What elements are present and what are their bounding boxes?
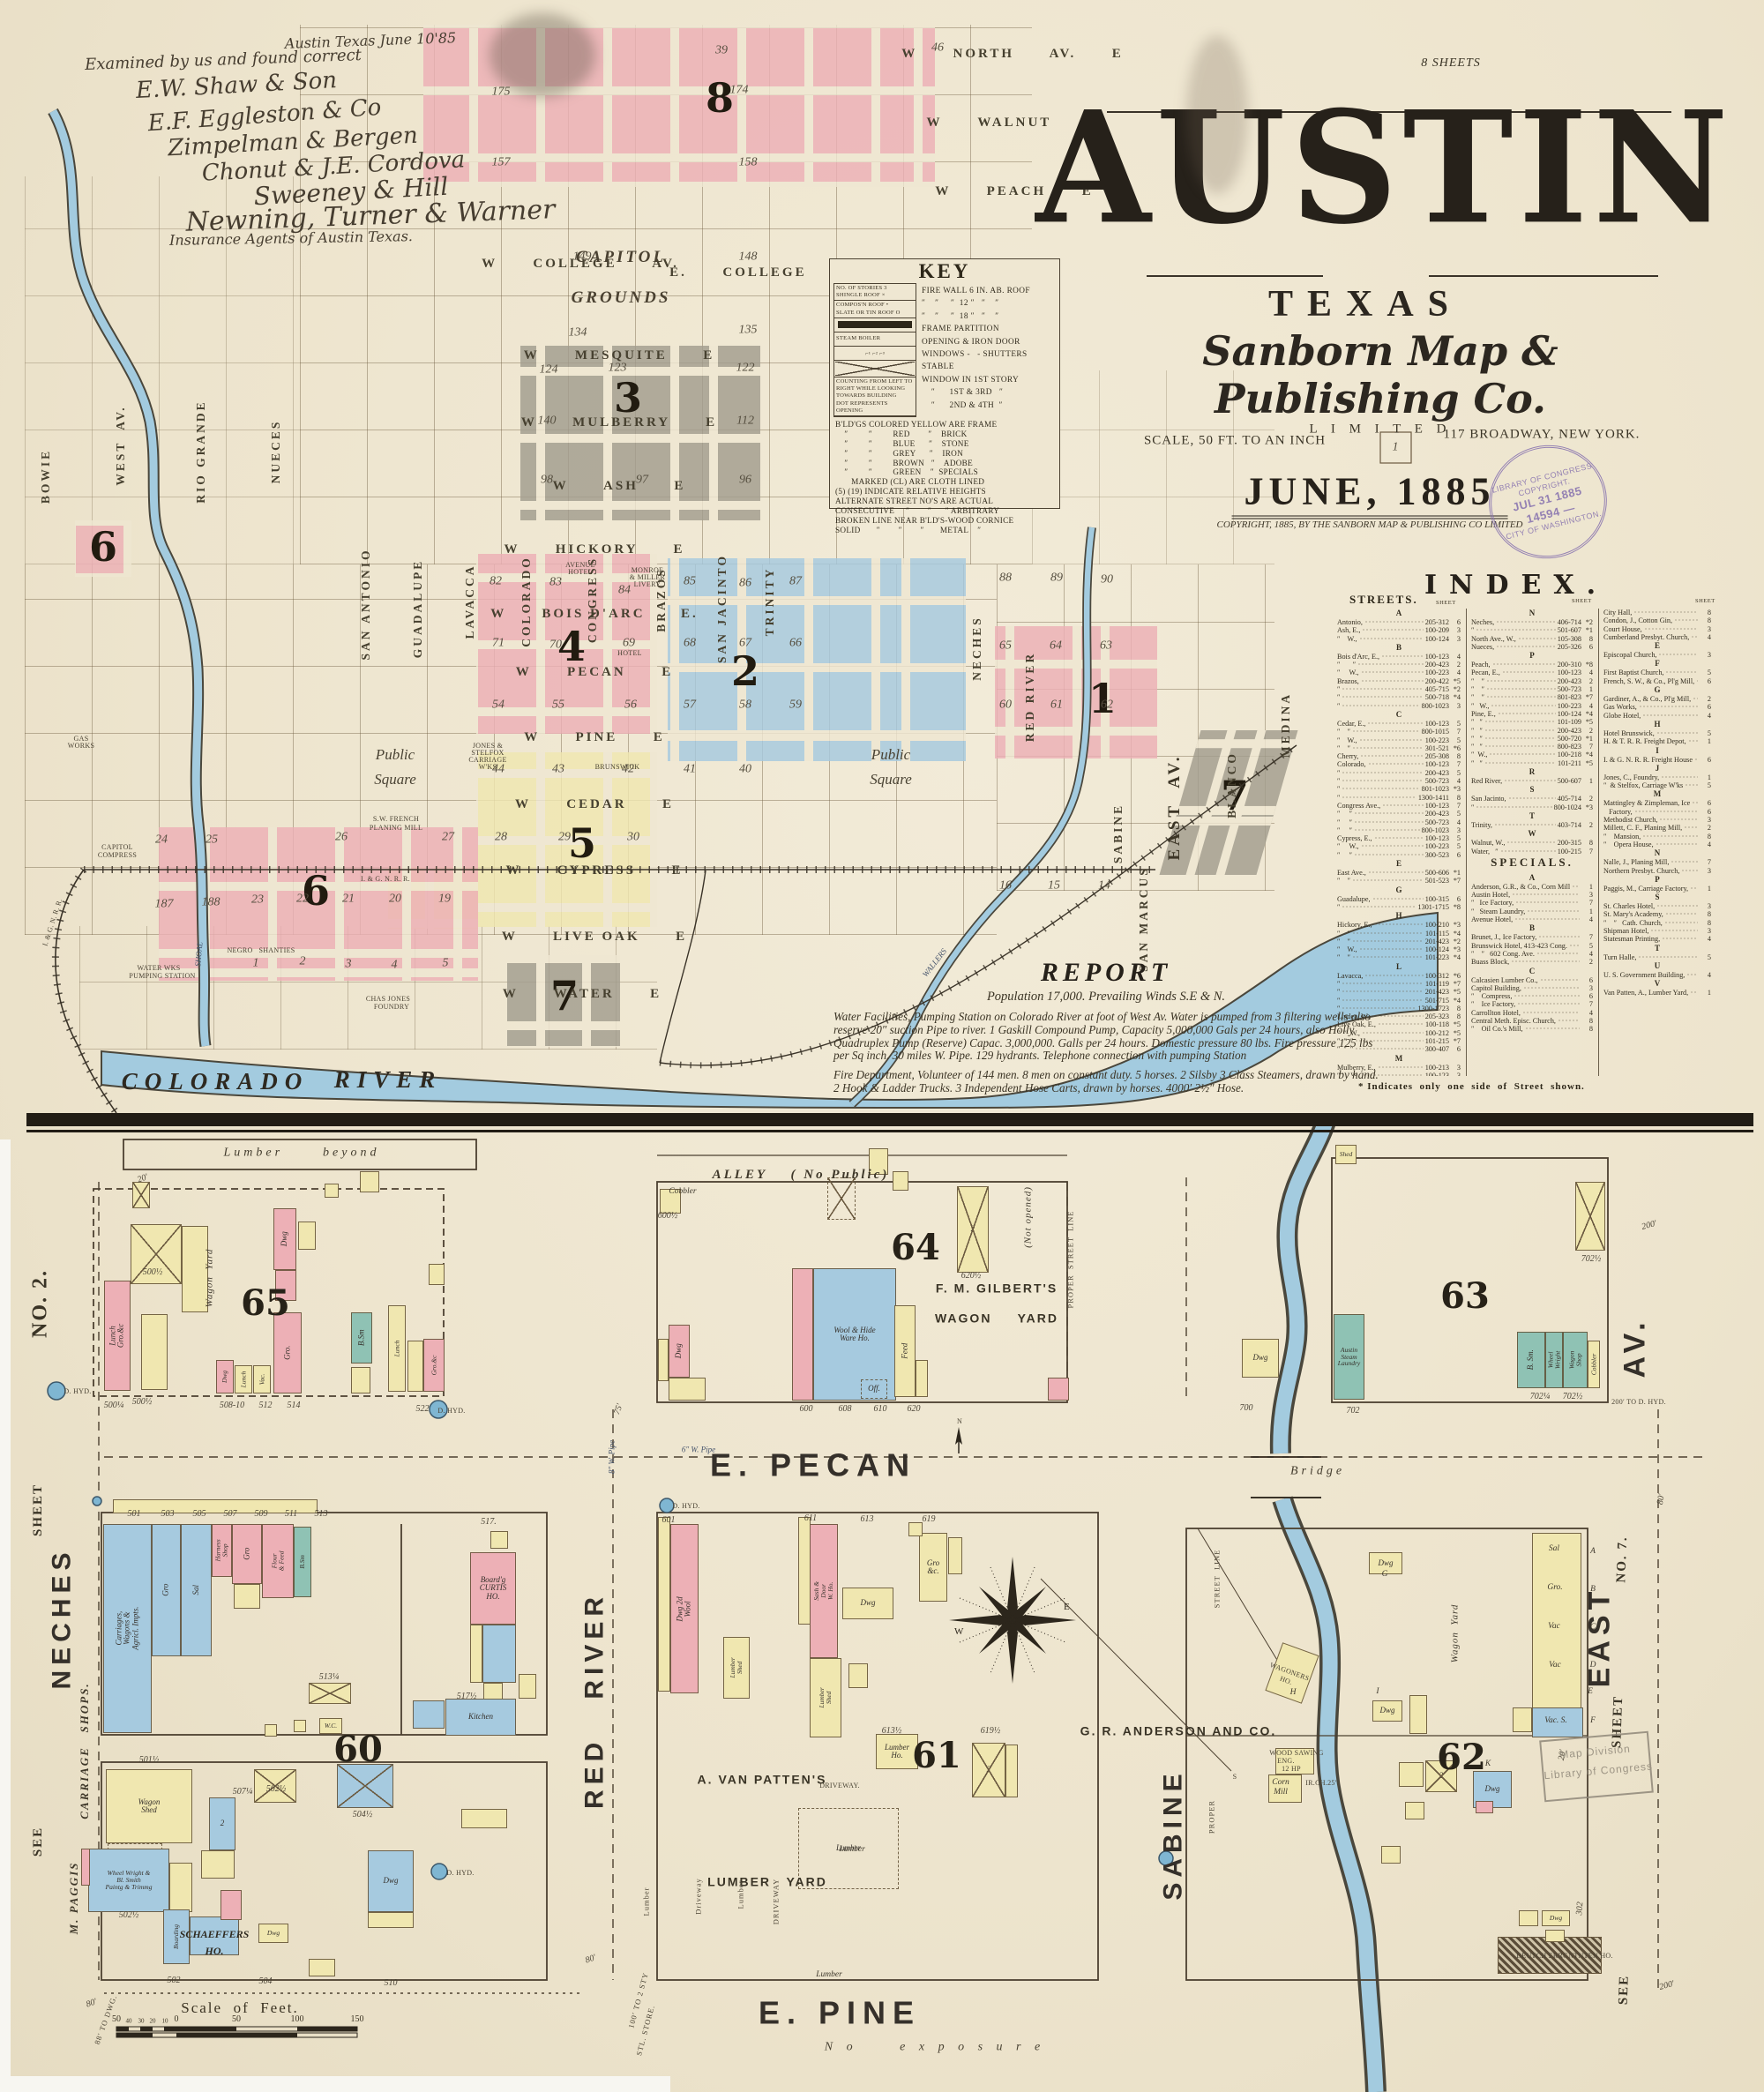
building: Feed bbox=[894, 1305, 916, 1397]
index-row: ″ Mansion,8 bbox=[1603, 833, 1711, 841]
building bbox=[81, 1849, 90, 1886]
sheet-label: 619½ bbox=[981, 1727, 1001, 1736]
building bbox=[1513, 1707, 1532, 1732]
index-row: Bois d'Arc, E.,100-1234 bbox=[1337, 653, 1461, 661]
sheet-label: HO. bbox=[206, 1946, 224, 1956]
building bbox=[298, 1222, 316, 1250]
sheet-label: 510 bbox=[385, 1979, 398, 1988]
index-row: ″800-10233 bbox=[1337, 702, 1461, 710]
map-feature-label: W'KS bbox=[479, 764, 497, 771]
block-number: 140 bbox=[538, 415, 557, 429]
sheet-label: ALLEY ( No Public) bbox=[713, 1169, 890, 1183]
building bbox=[360, 1171, 379, 1192]
index-row: Capitol Building,3 bbox=[1471, 984, 1593, 992]
block-number: 43 bbox=[552, 764, 564, 777]
building: Sash & Door W. Ho. bbox=[810, 1524, 838, 1658]
index-row: A bbox=[1471, 873, 1593, 883]
building-label: Wool & Hide Ware Ho. bbox=[833, 1326, 875, 1343]
index-row: ″500-718*4 bbox=[1337, 693, 1461, 701]
index-row: Red River,500-6071 bbox=[1471, 777, 1593, 785]
building: Gro bbox=[232, 1524, 262, 1584]
building: Dwg bbox=[669, 1325, 690, 1378]
key-line: ″ 1ST & 3RD ″ bbox=[922, 386, 1056, 399]
index-row: S bbox=[1471, 785, 1593, 795]
sheet-label: 611 bbox=[804, 1514, 817, 1523]
sheet-label: G bbox=[1382, 1571, 1388, 1580]
street-label-vertical: NECHES bbox=[971, 616, 983, 681]
sheet-label: Lumber bbox=[816, 1971, 842, 1980]
building: B. Sm. bbox=[1517, 1332, 1545, 1388]
report-fire-department: Fire Department, Volunteer of 144 men. 8… bbox=[833, 1069, 1379, 1095]
building: Dwg bbox=[216, 1360, 234, 1393]
sheet-divider-bar bbox=[26, 1113, 1753, 1126]
building: Lunch bbox=[388, 1305, 406, 1392]
block-number: 25 bbox=[206, 834, 218, 848]
building bbox=[482, 1625, 516, 1683]
building bbox=[234, 1584, 260, 1609]
index-row: ″ W.,100-2234 bbox=[1337, 669, 1461, 676]
index-row: R bbox=[1471, 767, 1593, 777]
index-row: Pecan, E.,100-1234 bbox=[1471, 669, 1593, 676]
sheet-label: A bbox=[1590, 1548, 1596, 1557]
building-label: Lumber Ho. bbox=[885, 1744, 909, 1760]
index-row: Paggis, M., Carriage Factory,1 bbox=[1603, 885, 1711, 893]
sheet-label: 702½ bbox=[1563, 1393, 1583, 1401]
sheet-label: Vac bbox=[1548, 1623, 1560, 1632]
index-row: ″ Ice Factory,7 bbox=[1471, 1000, 1593, 1008]
map-feature-label: BRUNSWICK bbox=[595, 764, 640, 771]
building-label: B.Sm bbox=[299, 1555, 306, 1569]
sheet-label: 512 bbox=[259, 1401, 273, 1410]
building bbox=[265, 1724, 277, 1737]
sheet-label: D. HYD. bbox=[437, 1408, 465, 1415]
key-line: ALTERNATE STREET NO'S ARE ACTUAL bbox=[835, 497, 1054, 506]
sheet-label: 63 bbox=[1440, 1278, 1490, 1315]
sheet-label: 613½ bbox=[882, 1727, 902, 1736]
sheet-label: 20 bbox=[150, 2018, 156, 2024]
building bbox=[470, 1625, 482, 1683]
street-label-vertical: GUADALUPE bbox=[412, 559, 424, 659]
sheet-label: 65 bbox=[241, 1285, 290, 1322]
index-row: Ash, E.,100-2093 bbox=[1337, 626, 1461, 634]
index-row: ″ Ice Factory,7 bbox=[1471, 899, 1593, 907]
building bbox=[337, 1764, 393, 1808]
index-row: N bbox=[1603, 848, 1711, 858]
index-row: Methodist Church,3 bbox=[1603, 816, 1711, 824]
scale-note: SCALE, 50 FT. TO AN INCH bbox=[1144, 434, 1326, 449]
scan-smudge bbox=[1186, 35, 1248, 194]
sheet-label: 62 bbox=[1437, 1739, 1486, 1776]
scan-smudge bbox=[490, 13, 595, 97]
index-row: San Jacinto,405-7142 bbox=[1471, 795, 1593, 803]
sheet-label: 504 bbox=[259, 1977, 273, 1986]
north-arrow bbox=[955, 1427, 962, 1453]
sheet-label: 610 bbox=[874, 1405, 887, 1414]
building: Off. bbox=[861, 1379, 887, 1399]
building: Dwg bbox=[368, 1850, 414, 1912]
building bbox=[948, 1537, 962, 1574]
block-number: 59 bbox=[789, 699, 802, 713]
building: 2 bbox=[209, 1797, 235, 1850]
block-number: 67 bbox=[739, 638, 751, 651]
key-line: STABLE bbox=[922, 361, 1056, 373]
sheet-label: EAST bbox=[1584, 1587, 1615, 1688]
sheet-label: 508-10 bbox=[220, 1401, 244, 1410]
block-number: 57 bbox=[684, 699, 696, 713]
building bbox=[1519, 1910, 1538, 1926]
block-number: 21 bbox=[342, 893, 355, 907]
index-row: P bbox=[1471, 651, 1593, 661]
building: Flour & Feed bbox=[262, 1524, 294, 1598]
key-line: CONSECUTIVE ″ ″ ″ ARBITRARY bbox=[835, 506, 1054, 516]
sheet-label: E. PECAN bbox=[710, 1448, 916, 1481]
building-label: 2 bbox=[987, 1766, 991, 1774]
street-label-vertical: WEST AV. bbox=[115, 405, 127, 485]
building: 2 bbox=[957, 1186, 989, 1273]
sheet-label: 702¼ bbox=[1530, 1393, 1551, 1401]
sheet-label: 600½ bbox=[658, 1212, 678, 1221]
block-number: 70 bbox=[549, 639, 562, 653]
index-row: ″ ″501-523*7 bbox=[1337, 877, 1461, 885]
sheet-label: Sal bbox=[1549, 1545, 1559, 1554]
street-label-vertical: SAN MARCUS bbox=[1138, 866, 1150, 972]
sheet-label: 700 bbox=[1240, 1404, 1253, 1413]
block-number: 40 bbox=[739, 764, 751, 777]
index-streets-heading: STREETS. bbox=[1349, 593, 1418, 607]
sheet-label: IR.CH.25′ bbox=[1305, 1780, 1337, 1787]
index-row: ″ ″500-720*1 bbox=[1471, 735, 1593, 743]
building: Dwg bbox=[842, 1588, 893, 1619]
sheet-label: 522 bbox=[416, 1405, 430, 1414]
index-row: City Hall,8 bbox=[1603, 609, 1711, 616]
building-label: Wheel Wright bbox=[1547, 1351, 1561, 1369]
key-line: ″ ″ GREY ″ IRON bbox=[835, 449, 1054, 459]
key-cell: NO. OF STORIES 3SHINGLE ROOF × bbox=[834, 284, 916, 301]
block-number: 68 bbox=[684, 638, 696, 651]
sheet-label: I bbox=[1376, 1688, 1379, 1697]
sheet-label: SHEET bbox=[32, 1483, 46, 1536]
index-row: N bbox=[1471, 609, 1593, 618]
key-line: B'LD'GS COLORED YELLOW ARE FRAME bbox=[835, 420, 1054, 430]
building-label: Dwg bbox=[1379, 1707, 1394, 1715]
sheet-label: Bridge bbox=[1290, 1466, 1345, 1479]
sheet-label: A. VAN PATTEN'S bbox=[698, 1774, 827, 1787]
building-label: Wagon Shed bbox=[138, 1798, 161, 1815]
copyright-line: COPYRIGHT, 1885, BY THE SANBORN MAP & PU… bbox=[1216, 519, 1522, 530]
building bbox=[351, 1367, 370, 1393]
index-row: ″ Compress,6 bbox=[1471, 992, 1593, 1000]
index-row: ″1301-1715*8 bbox=[1337, 903, 1461, 911]
key-line: SOLID ″ ″ ″ METAL ″ bbox=[835, 526, 1054, 535]
map-feature-label: PLANING MILL bbox=[370, 825, 422, 832]
index-row: Brunswick Hotel, 413-423 Cong.5 bbox=[1471, 942, 1593, 950]
scan-edge bbox=[0, 2076, 670, 2092]
index-row: Colorado,100-1237 bbox=[1337, 760, 1461, 768]
key-cell: STEAM BOILER bbox=[834, 332, 916, 347]
street-label-vertical: LAVACCA bbox=[464, 564, 476, 639]
street-label-vertical: SABINE bbox=[1112, 803, 1125, 863]
street-label-vertical: SAN ANTONIO bbox=[360, 549, 372, 661]
sheet-label: Gro. bbox=[1547, 1584, 1562, 1593]
sheet-label: 150 bbox=[351, 2015, 364, 2024]
block-number: 62 bbox=[1101, 699, 1113, 713]
sheet-label: Driveway bbox=[695, 1878, 703, 1915]
street-label: W WATER E bbox=[503, 988, 661, 1002]
index-row: ″ ″800-10233 bbox=[1337, 826, 1461, 834]
map-subtitle-state: TEXAS bbox=[1268, 283, 1462, 325]
block-number: 88 bbox=[999, 572, 1012, 586]
key-cell: COMPOS'N ROOF •SLATE OR TIN ROOF O bbox=[834, 301, 916, 318]
index-row: ″ ″200-4232 bbox=[1471, 727, 1593, 735]
block-number: 30 bbox=[627, 832, 639, 845]
sheet-divider-line bbox=[26, 1130, 1753, 1132]
map-feature-label: HOTEL bbox=[617, 650, 642, 657]
block-number: 187 bbox=[155, 899, 174, 912]
map-feature-label: COMPRESS bbox=[98, 852, 137, 859]
building: Kitchen bbox=[445, 1699, 516, 1736]
report-water-facilities: Water Facilities, Pumping Station on Col… bbox=[833, 1011, 1379, 1063]
building bbox=[429, 1264, 445, 1285]
block-number: 87 bbox=[789, 576, 802, 589]
sheet-label: F bbox=[1590, 1717, 1596, 1726]
building: Shed bbox=[1335, 1145, 1357, 1164]
index-row: T bbox=[1603, 944, 1711, 953]
key-symbol-column: NO. OF STORIES 3SHINGLE ROOF ×COMPOS'N R… bbox=[833, 283, 916, 417]
building bbox=[169, 1863, 192, 1912]
map-feature-label: COLORADO bbox=[122, 1069, 310, 1094]
block-number: 61 bbox=[1050, 699, 1063, 713]
building bbox=[1399, 1762, 1424, 1787]
key-legend-column: FIRE WALL 6 IN. AB. ROOF″ ″ ″ 12 ″ ″ ″″ … bbox=[916, 283, 1056, 417]
sheet-label: 511 bbox=[285, 1510, 297, 1519]
block-number: 124 bbox=[540, 364, 558, 377]
publisher-address: 117 BROADWAY, NEW YORK. bbox=[1444, 428, 1641, 443]
block-number: 123 bbox=[609, 362, 627, 376]
building: Dwg bbox=[258, 1924, 288, 1943]
map-division-stamp-line: Library of Congress bbox=[1543, 1761, 1650, 1782]
building-label: Dwg bbox=[383, 1877, 398, 1885]
sheet-label: PROPER STREET LINE bbox=[1067, 1211, 1075, 1309]
index-row: Guadalupe,100-3156 bbox=[1337, 895, 1461, 903]
building-label: Gro bbox=[162, 1584, 170, 1596]
sheet-label: M. PAGGIS bbox=[68, 1862, 80, 1935]
building: Gro &c. bbox=[919, 1533, 947, 1602]
building: Gro.&c bbox=[423, 1339, 445, 1392]
sheet-label: RED RIVER bbox=[580, 1592, 608, 1809]
index-row: C bbox=[1337, 710, 1461, 720]
building-label: Dwg bbox=[1378, 1559, 1393, 1567]
building bbox=[1409, 1695, 1427, 1734]
index-row: W bbox=[1471, 829, 1593, 839]
index-row: S bbox=[1603, 893, 1711, 902]
key-cell bbox=[834, 361, 916, 377]
map-division-stamp-line: Map Division bbox=[1542, 1742, 1648, 1762]
key-line: MARKED (CL) ARE CLOTH LINED bbox=[835, 477, 1054, 487]
key-color-legend: B'LD'GS COLORED YELLOW ARE FRAME ″ ″ RED… bbox=[830, 417, 1059, 534]
sheet-label: G. R. ANDERSON AND CO. bbox=[1080, 1725, 1277, 1738]
sheet-label: 601 bbox=[662, 1516, 676, 1525]
index-row: G bbox=[1337, 885, 1461, 895]
index-panel: INDEX. STREETS. SHEET SHEET SHEET AAnton… bbox=[1323, 563, 1715, 1102]
index-row: Brunet, J., Ice Factory,7 bbox=[1471, 933, 1593, 941]
sheet-label: 513 bbox=[315, 1510, 328, 1519]
block-number: 5 bbox=[443, 958, 449, 971]
building bbox=[1476, 1801, 1493, 1813]
sheet-label: Cobbler bbox=[669, 1188, 696, 1197]
map-feature-label: S.W. FRENCH bbox=[373, 816, 419, 823]
index-row: North Ave., W.,105-3088 bbox=[1471, 635, 1593, 643]
index-row: Buass Block,2 bbox=[1471, 958, 1593, 966]
block-number: 98 bbox=[541, 474, 553, 488]
sheet-label: 10 bbox=[162, 2018, 168, 2024]
index-row: Austin Hotel,3 bbox=[1471, 891, 1593, 899]
key-line: (5) (19) INDICATE RELATIVE HEIGHTS bbox=[835, 487, 1054, 497]
building bbox=[827, 1177, 856, 1220]
building-label: Dwg bbox=[1252, 1354, 1267, 1362]
building bbox=[908, 1522, 923, 1536]
street-label-vertical: NUECES bbox=[270, 420, 282, 484]
sheet-label: Lumber bbox=[643, 1887, 651, 1916]
index-row: Neches,406-714*2 bbox=[1471, 618, 1593, 626]
street-label-vertical: RED RIVER bbox=[1024, 652, 1036, 742]
title-rule-right bbox=[1429, 275, 1658, 277]
map-feature-label: I. & G. N. R. R. bbox=[361, 876, 410, 883]
index-row: P bbox=[1603, 875, 1711, 885]
index-row: Central Meth. Episc. Church,8 bbox=[1471, 1017, 1593, 1025]
sheet-label: D bbox=[1590, 1662, 1596, 1670]
sheet-label: 702½ bbox=[1581, 1255, 1602, 1264]
sheet-label: WAGON YARD bbox=[935, 1312, 1058, 1326]
index-row: H bbox=[1337, 911, 1461, 921]
block-number: 27 bbox=[442, 832, 454, 845]
street-label-vertical: SAN JACINTO bbox=[716, 554, 729, 663]
scale-bar bbox=[116, 2027, 357, 2037]
sheet-label: 500½ bbox=[143, 1268, 163, 1277]
building: 2 bbox=[972, 1743, 1005, 1797]
street-label-vertical: EAST AV. bbox=[1166, 753, 1184, 860]
key-panel: KEY NO. OF STORIES 3SHINGLE ROOF ×COMPOS… bbox=[829, 258, 1060, 509]
index-row: U. S. Government Building,4 bbox=[1603, 971, 1711, 979]
index-row: B bbox=[1471, 923, 1593, 933]
index-row: Van Patten, A., Lumber Yard,1 bbox=[1603, 989, 1711, 997]
sheet-label: NO. 7. bbox=[1615, 1535, 1630, 1583]
building bbox=[368, 1912, 414, 1928]
building: Cobbler bbox=[1588, 1341, 1600, 1388]
building-label: Dwg bbox=[267, 1930, 280, 1937]
sheet-label: 613 bbox=[861, 1515, 874, 1524]
map-feature-label: Public bbox=[376, 747, 415, 763]
building-label: Carriages, Wagons & Agricl. Impts. bbox=[115, 1607, 139, 1650]
building bbox=[220, 1890, 242, 1920]
building bbox=[294, 1720, 306, 1732]
sheet-label: 600 bbox=[800, 1405, 813, 1414]
sheet-label: STREET LINE bbox=[1214, 1550, 1222, 1609]
map-date: JUNE, 1885 bbox=[1232, 469, 1508, 519]
scan-edge bbox=[0, 1139, 11, 2092]
block-number: 16 bbox=[999, 880, 1012, 893]
building-label: Feed bbox=[901, 1343, 908, 1359]
map-feature-label: Square bbox=[870, 772, 912, 788]
index-row: ″800-1024*3 bbox=[1471, 803, 1593, 811]
key-line: BROKEN LINE NEAR B'LD'S-WOOD CORNICE bbox=[835, 516, 1054, 526]
building-label: Vac. bbox=[258, 1374, 265, 1386]
sheet-label: 200′ TO D. HYD. bbox=[1611, 1399, 1666, 1406]
sheet-label: 513¼ bbox=[319, 1673, 340, 1682]
key-line: ″ ″ BLUE ″ STONE bbox=[835, 439, 1054, 449]
index-row: Factory,6 bbox=[1603, 808, 1711, 816]
building-label: Dwg bbox=[675, 1343, 683, 1358]
sheet-label: PROPER bbox=[1208, 1800, 1216, 1834]
street-label-vertical: COLORADO bbox=[520, 556, 533, 647]
sheet-label: Vac. S. bbox=[1544, 1717, 1567, 1726]
building-label: Dwg bbox=[280, 1231, 288, 1246]
index-row: Trinity,403-7142 bbox=[1471, 821, 1593, 829]
index-row: First Baptist Church,5 bbox=[1603, 669, 1711, 676]
street-label-vertical: RIO GRANDE bbox=[195, 400, 207, 503]
sheet-label: SEE bbox=[1618, 1975, 1633, 2006]
key-title: KEY bbox=[830, 260, 1059, 283]
index-column-3: City Hall,8Condon, J., Cotton Gin,8Court… bbox=[1603, 609, 1711, 1076]
block-number: 64 bbox=[1050, 640, 1062, 654]
building: Lumber Shed bbox=[723, 1637, 750, 1699]
index-row: SPECIALS. bbox=[1471, 855, 1593, 873]
block-number: 89 bbox=[1050, 572, 1063, 586]
sheet-label: F. M. GILBERT'S bbox=[936, 1282, 1058, 1296]
sheet-label: N o e x p o s u r e bbox=[825, 2042, 1045, 2055]
key-line: FRAME PARTITION bbox=[922, 323, 1056, 335]
index-row: Anderson, G.R., & Co., Corn Mill1 bbox=[1471, 883, 1593, 891]
street-label-vertical: TRINITY bbox=[764, 567, 776, 637]
building: Wheel Wright bbox=[1545, 1332, 1563, 1388]
index-row: ″ ″200-4235 bbox=[1337, 810, 1461, 818]
report-panel: REPORT Population 17,000. Prevailing Win… bbox=[833, 958, 1379, 1095]
index-row: Mattingley & Zimpleman, Ice6 bbox=[1603, 799, 1711, 807]
sheet-label: 702 bbox=[1347, 1407, 1360, 1416]
block-number: 175 bbox=[492, 86, 511, 100]
index-divider bbox=[1466, 609, 1467, 1076]
block-number: 28 bbox=[495, 832, 507, 845]
building-label: Lunch bbox=[393, 1341, 400, 1357]
index-row: F bbox=[1603, 659, 1711, 669]
block-number: 22 bbox=[296, 893, 309, 907]
index-row: Millett, C. F., Planing Mill,2 bbox=[1603, 824, 1711, 832]
key-line: WINDOW IN 1ST STORY bbox=[922, 374, 1056, 386]
sheet-label: 64 bbox=[891, 1229, 940, 1266]
sheet-label: E bbox=[1588, 1688, 1593, 1697]
index-row: ″1300-14118 bbox=[1337, 794, 1461, 802]
building-label: Lunch Gro.&c bbox=[109, 1324, 126, 1348]
street-label-vertical: MEDINA bbox=[1280, 692, 1292, 758]
building bbox=[658, 1517, 670, 1692]
block-number: 96 bbox=[739, 474, 751, 488]
key-line: OPENING & IRON DOOR bbox=[922, 336, 1056, 348]
sheet-label: SABINE bbox=[1159, 1768, 1186, 1900]
building-label: Harness Shop bbox=[215, 1539, 229, 1561]
index-sheet-label: SHEET bbox=[1572, 598, 1592, 604]
building-label: Dwg bbox=[1550, 1915, 1562, 1922]
sheet-label: 504½ bbox=[353, 1811, 373, 1819]
index-row: Carrollton Hotel,4 bbox=[1471, 1009, 1593, 1017]
index-row: Statesman Printing,4 bbox=[1603, 935, 1711, 943]
sheet-label: 500½ bbox=[132, 1398, 153, 1407]
street-label: W PINE E bbox=[524, 731, 665, 745]
block-number: 97 bbox=[636, 474, 648, 488]
building-label: Shed bbox=[1340, 1151, 1353, 1158]
block-number: 56 bbox=[624, 699, 637, 713]
sheet-label: LUMBER YARD bbox=[707, 1876, 827, 1889]
building: Lunch bbox=[235, 1365, 252, 1393]
index-row: ″ W.,100-218*4 bbox=[1471, 751, 1593, 758]
